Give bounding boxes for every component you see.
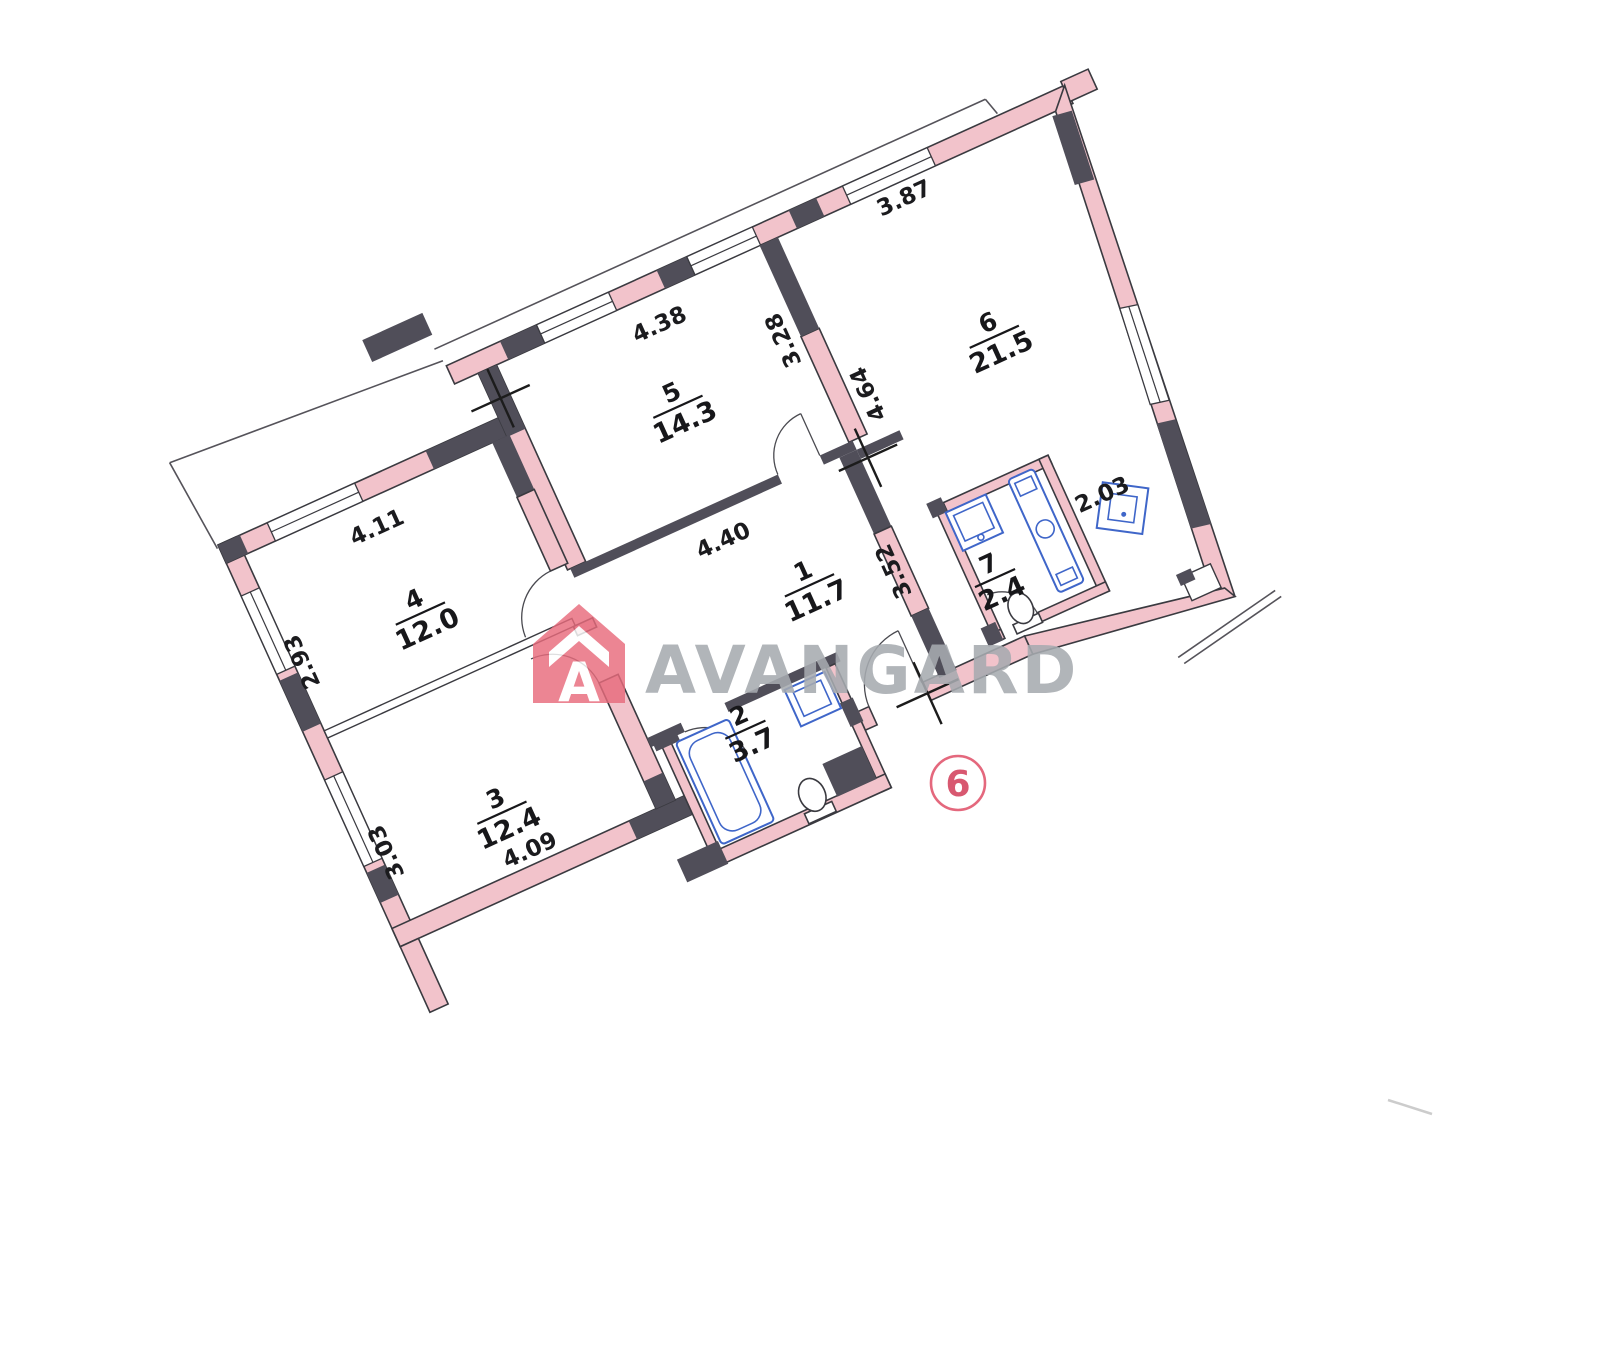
watermark-logo-letter: A — [558, 651, 600, 714]
dim-room4-top: 4.11 — [346, 504, 408, 551]
watermark-text: AVANGARD — [645, 632, 1079, 709]
neighbor-wall-stub — [362, 313, 432, 362]
watermark-logo: A — [533, 604, 625, 714]
room-5-label: 5 14.3 — [635, 366, 722, 451]
unit-marker: 6 — [931, 756, 985, 810]
dim-room5-top: 4.38 — [628, 301, 690, 348]
scanned-floor-plan-page: 4.38 3.87 4.11 4.40 4.09 2.03 2.93 3.03 … — [0, 0, 1600, 1348]
room-4-label: 4 12.0 — [378, 573, 465, 658]
unit-marker-label: 6 — [945, 764, 970, 805]
floor-plan: 4.38 3.87 4.11 4.40 4.09 2.03 2.93 3.03 … — [156, 21, 1330, 1017]
floor-plan-svg: 4.38 3.87 4.11 4.40 4.09 2.03 2.93 3.03 … — [0, 0, 1600, 1348]
scan-artifact — [1388, 1100, 1432, 1114]
room-6-label: 6 21.5 — [952, 296, 1039, 381]
dim-room1-top: 4.40 — [692, 517, 754, 564]
room-1-label: 1 11.7 — [767, 544, 854, 629]
